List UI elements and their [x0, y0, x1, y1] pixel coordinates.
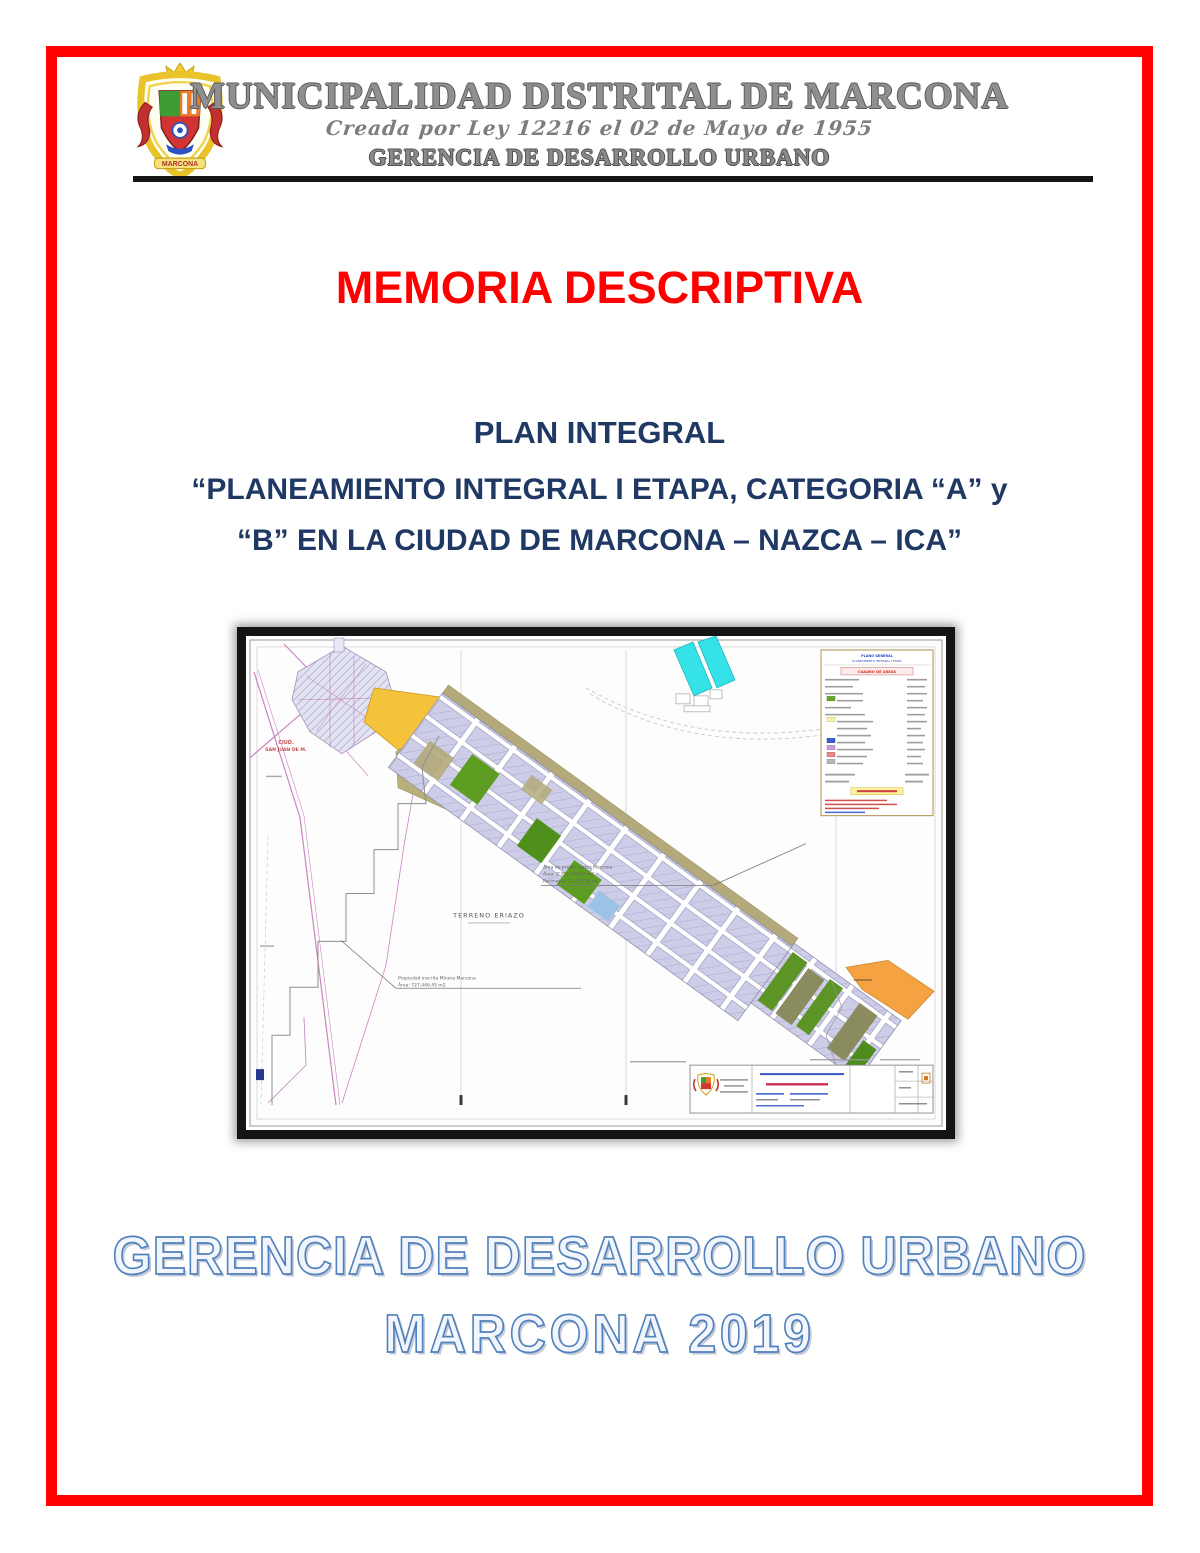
map-legend: PLANO GENERAL PLANEAMIENTO INTEGRAL I ET… [821, 650, 933, 816]
header-office-line: GERENCIA DE DESARROLLO URBANO [57, 145, 1142, 171]
plan-name-line1: “PLANEAMIENTO INTEGRAL I ETAPA, CATEGORI… [57, 473, 1142, 507]
svg-text:Área: 727,446.45 m2: Área: 727,446.45 m2 [398, 981, 446, 988]
map-marker [256, 1069, 264, 1080]
svg-text:Área de predio matriz Marcona: Área de predio matriz Marcona [543, 864, 613, 871]
svg-text:TERRENO ERIAZO: TERRENO ERIAZO [452, 911, 525, 919]
creation-law-line: Creada por Ley 12216 el 02 de Mayo de 19… [56, 116, 1144, 140]
urban-plan-map: CIUD. SAN JUAN DE M. [237, 627, 955, 1139]
document-page-frame: MARCONA MUNICIPALIDAD DISTRITAL DE MARCO… [46, 46, 1153, 1506]
svg-text:CIUD.: CIUD. [278, 740, 294, 746]
municipality-name: MUNICIPALIDAD DISTRITAL DE MARCONA [57, 75, 1142, 118]
svg-text:Área: 2'354,449.97 m2: Área: 2'354,449.97 m2 [543, 871, 595, 878]
svg-text:Propiedad inscrita Minera Marc: Propiedad inscrita Minera Marcona [398, 975, 476, 981]
map-drawing: CIUD. SAN JUAN DE M. [246, 636, 946, 1130]
plan-name-line2: “B” EN LA CIUDAD DE MARCONA – NAZCA – IC… [57, 524, 1142, 558]
svg-text:Perímetro: 12,753.56 ml: Perímetro: 12,753.56 ml [543, 878, 598, 885]
footer-city-year: MARCONA 2019 [95, 1303, 1104, 1365]
plan-label: PLAN INTEGRAL [57, 415, 1142, 451]
header-divider-rule [133, 176, 1093, 182]
svg-text:CUADRO DE AREAS: CUADRO DE AREAS [858, 670, 897, 674]
svg-text:SAN JUAN DE M.: SAN JUAN DE M. [265, 747, 307, 753]
document-title: MEMORIA DESCRIPTIVA [57, 262, 1142, 314]
svg-text:PLANO GENERAL: PLANO GENERAL [861, 654, 894, 658]
footer-office-title: GERENCIA DE DESARROLLO URBANO [95, 1225, 1104, 1287]
svg-text:PLANEAMIENTO INTEGRAL I ETAPA: PLANEAMIENTO INTEGRAL I ETAPA [852, 659, 901, 663]
